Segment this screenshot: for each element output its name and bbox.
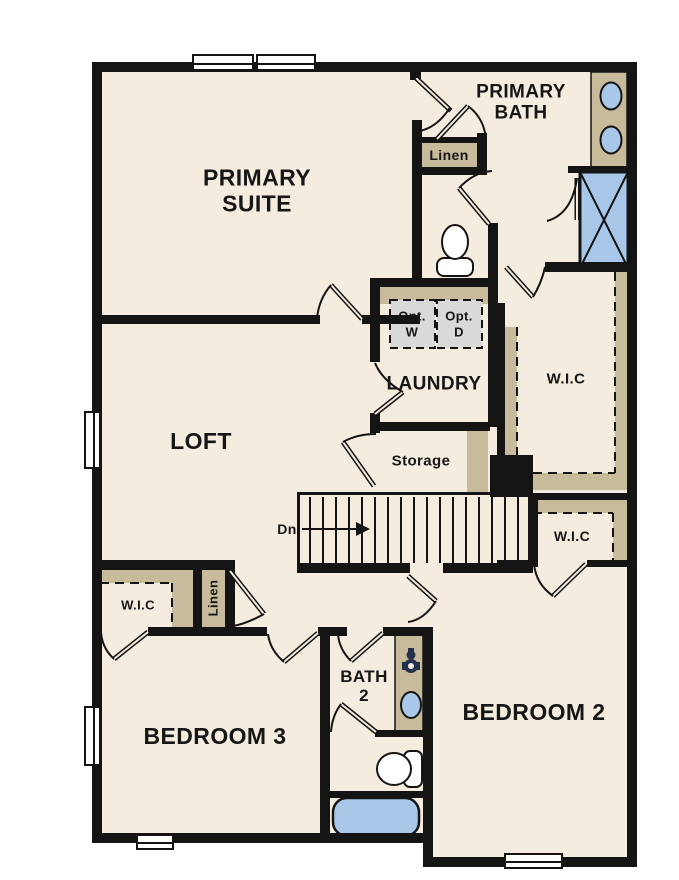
label-stairs-dn: Dn [277, 522, 296, 538]
window-bedroom3-left [85, 707, 100, 765]
room-label-bedroom3: BEDROOM 3 [144, 724, 287, 750]
room-label-primary-suite: PRIMARY SUITE [203, 165, 311, 217]
room-label-storage: Storage [392, 454, 451, 471]
wic-primary-shelf-bottom [533, 473, 627, 490]
floor-plan: PRIMARY SUITE PRIMARY BATH Linen Opt. W … [0, 0, 679, 880]
window-top-1 [193, 55, 253, 70]
room-label-bedroom2: BEDROOM 2 [463, 700, 606, 726]
room-label-laundry: LAUNDRY [387, 373, 482, 394]
storage-shelf [467, 431, 488, 493]
room-label-primary-bath: PRIMARY BATH [476, 82, 566, 125]
primary-sink-1-icon [601, 83, 622, 110]
room-label-wic-primary: W.I.C [547, 372, 586, 389]
window-top-2 [257, 55, 315, 70]
label-opt-dryer: Opt. D [445, 308, 473, 339]
floor-plan-drawing [0, 0, 679, 880]
window-bedroom3-bottom [137, 835, 173, 849]
toilet-bath2-icon [377, 751, 422, 787]
window-bedroom2-bottom [505, 854, 562, 868]
bath2-sink-icon [401, 692, 421, 718]
wic-primary-shelf-left [505, 327, 517, 455]
room-label-wic-hall: W.I.C [554, 529, 590, 545]
wic-primary-shelf-right [615, 272, 627, 480]
label-opt-washer: Opt. W [398, 308, 426, 339]
bathtub-icon [333, 798, 419, 836]
window-loft [85, 412, 100, 468]
room-label-loft: LOFT [170, 429, 232, 455]
room-label-wic-bed3: W.I.C [121, 599, 155, 614]
room-label-bath2: BATH 2 [340, 667, 388, 705]
primary-sink-2-icon [601, 127, 622, 154]
shower-icon [580, 172, 628, 268]
label-linen-upper: Linen [429, 148, 468, 164]
label-linen-bed3: Linen [207, 580, 222, 617]
